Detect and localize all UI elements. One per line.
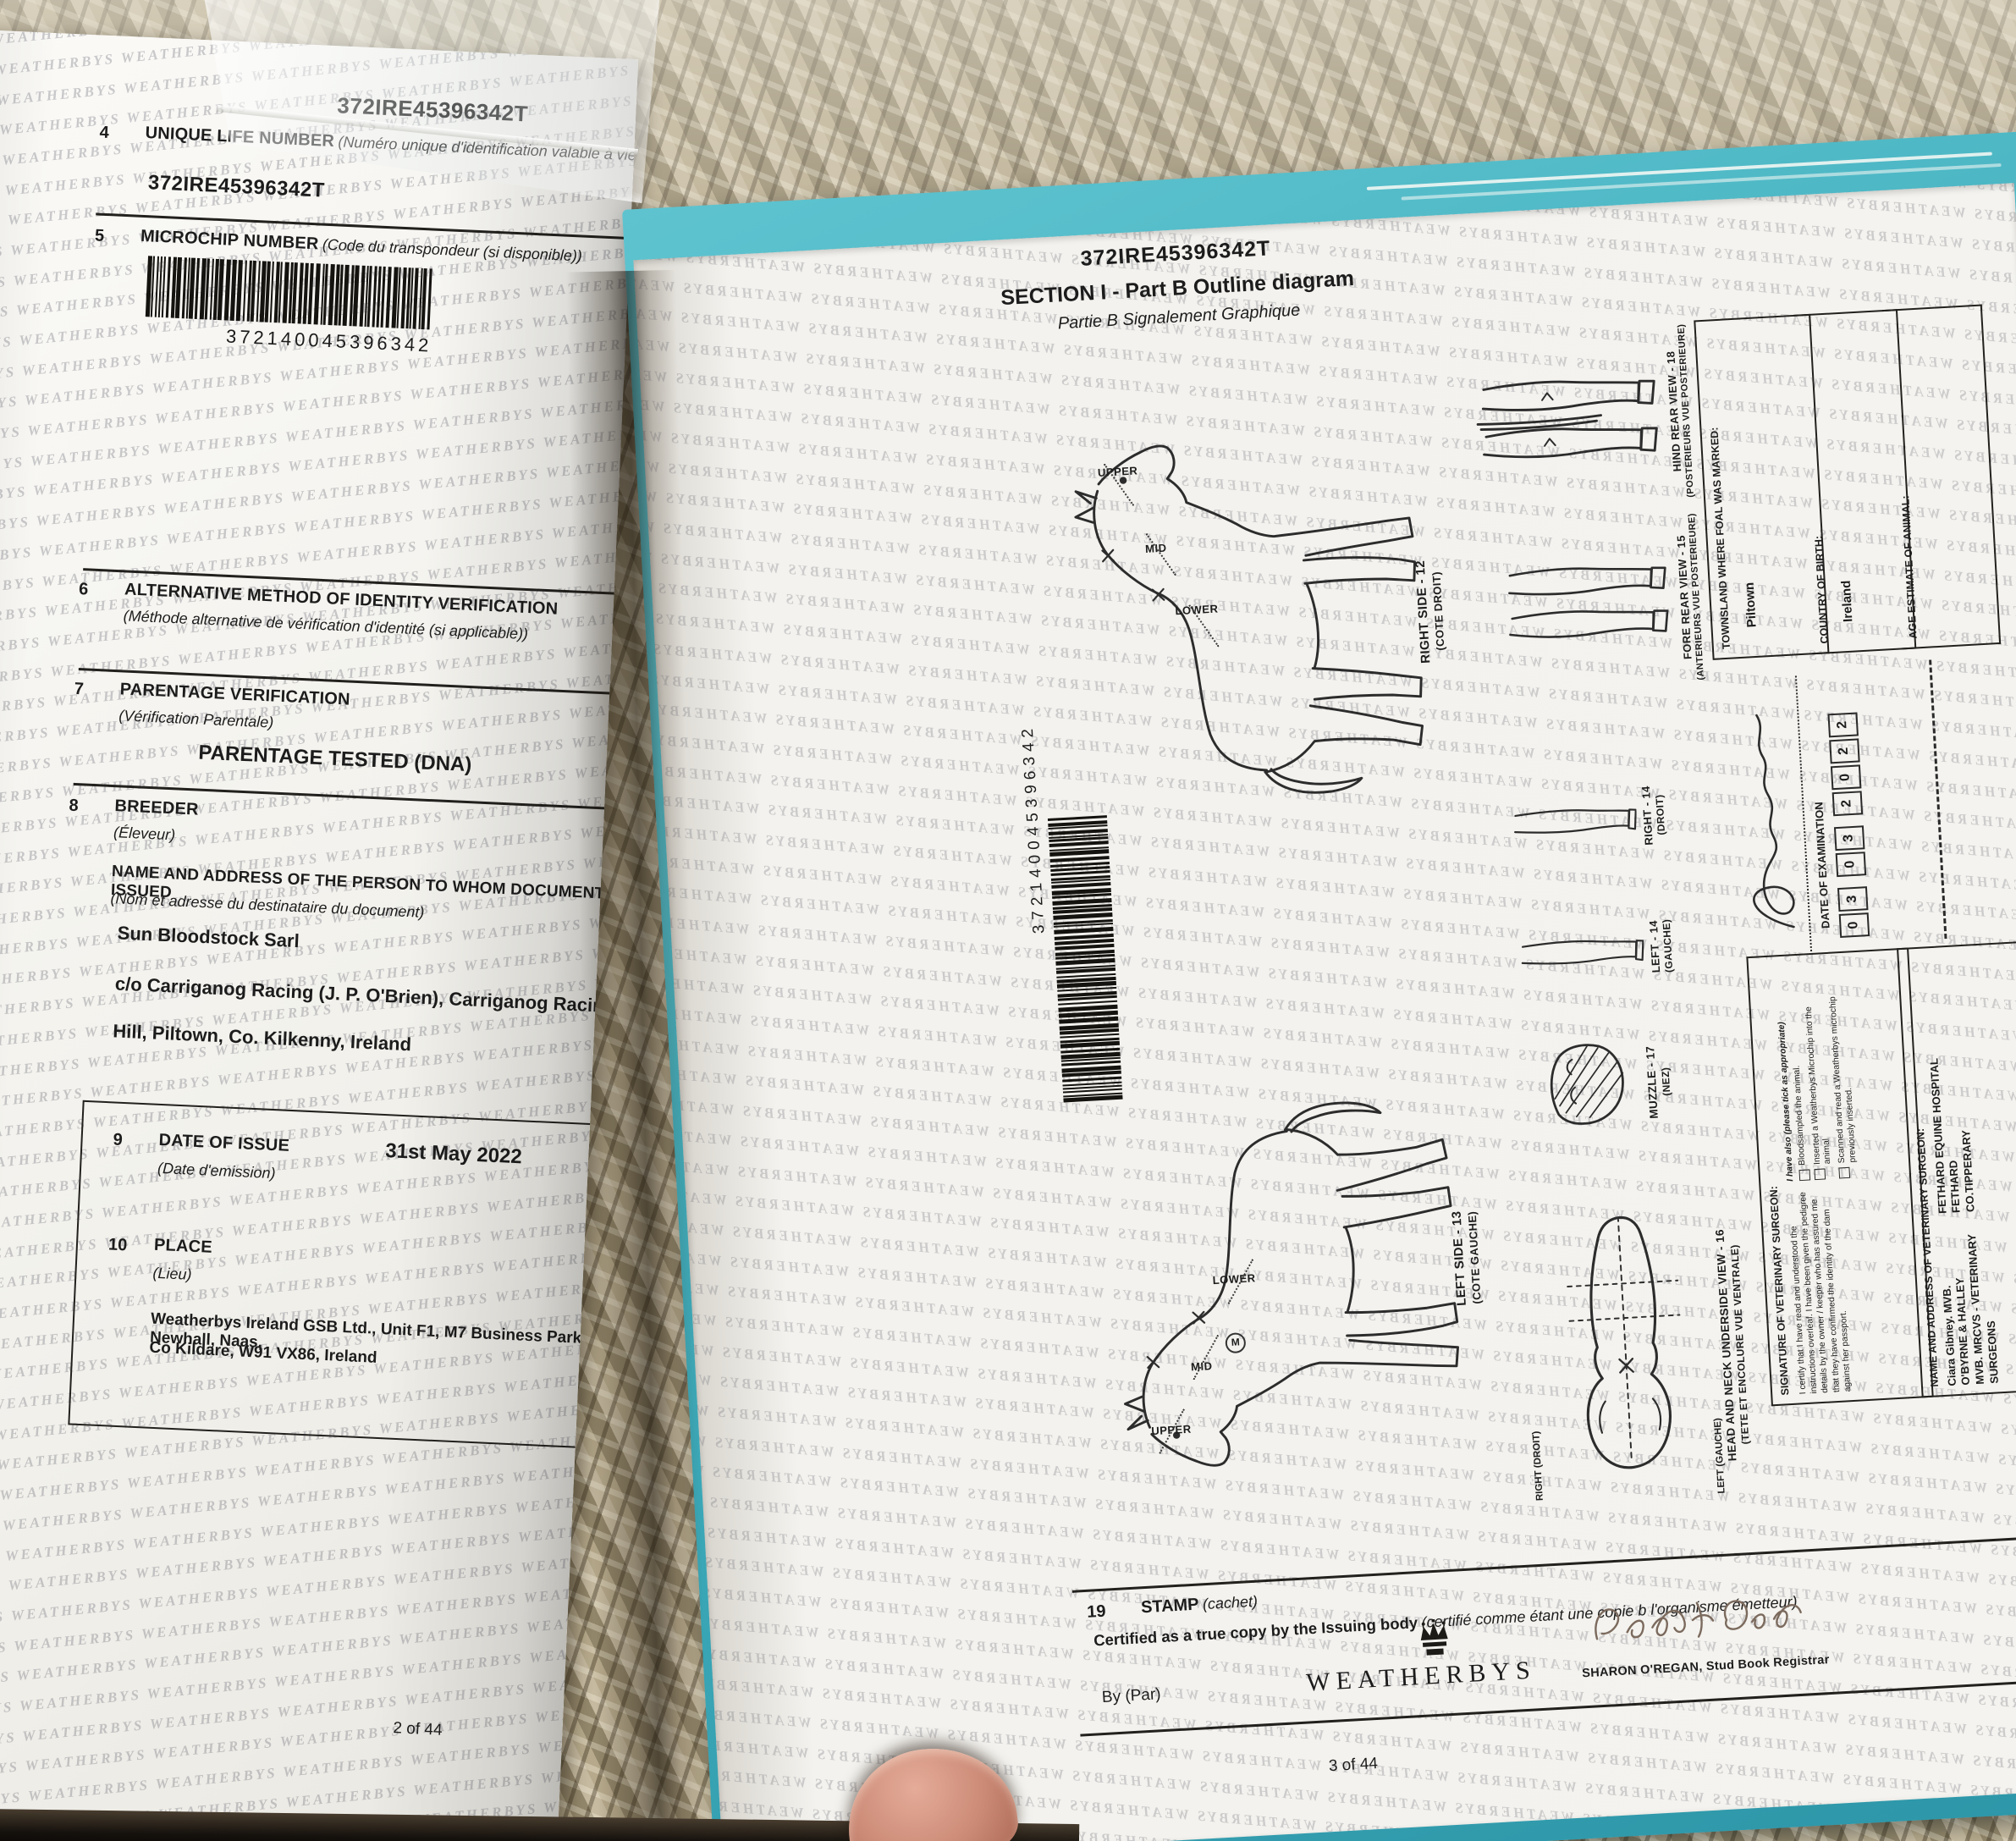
certification-text: I certify that I have read and understoo…	[1787, 1188, 1873, 1395]
microchip-barcode	[146, 256, 512, 333]
hind-rear-view-outline	[1469, 344, 1667, 494]
parentage-value: PARENTAGE TESTED (DNA)	[198, 741, 472, 778]
townsland-label: TOWNSLAND WHERE FOAL WAS MARKED:	[1703, 329, 1734, 649]
age-box: AGE ESTIMATE OF ANIMAL:	[1882, 304, 2001, 649]
weatherbys-crown-icon	[1411, 1618, 1457, 1660]
left-14-label: LEFT - 14 (GAUCHE)	[1645, 886, 1678, 1006]
townsland-value: Piltown	[1727, 328, 1759, 627]
section19-label: STAMP (cachet)	[1141, 1592, 1259, 1618]
dashed-separator	[1929, 659, 1947, 939]
right-14-label: RIGHT - 14 (DROIT)	[1638, 755, 1671, 875]
section9-number: 9	[113, 1130, 123, 1149]
section7-label-fr: (Vérification Parentale)	[118, 707, 274, 731]
by-label: By (Par)	[1101, 1685, 1161, 1707]
unique-life-number-value: 372IRE45396342T	[147, 171, 325, 202]
left-foreleg-outline	[1516, 921, 1645, 984]
examination-panel: SIGNATURE OF VETERINARY SURGEON: I certi…	[1695, 324, 2016, 1407]
microchip-scanned-checkbox	[1839, 1167, 1851, 1179]
date-of-examination-boxes: 03032022	[1827, 709, 1870, 938]
mane-lower-label: LOWER	[1212, 1271, 1256, 1287]
hind-rear-label: HIND REAR VIEW - 18 (POSTERIEURS VUE POS…	[1662, 322, 1698, 500]
section7-number: 7	[74, 680, 84, 699]
outline-diagram-rotated-block: 372140045396342	[997, 309, 2016, 1564]
horse-passport-photo: WEATHERBYS WEATHERBYS WEATHERBYS WEATHER…	[0, 0, 2016, 1841]
section6-number: 6	[79, 580, 89, 599]
tick-section: I have also (please tick as appropriate)…	[1775, 983, 1860, 1182]
mane-upper-label-2: UPPER	[1098, 464, 1138, 479]
right-foreleg-outline	[1508, 790, 1638, 852]
head-neck-right-label: RIGHT (DROIT)	[1531, 1428, 1547, 1505]
section8-label-fr: (Éleveur)	[113, 824, 176, 844]
section4-number: 4	[99, 124, 109, 143]
registrar-signature	[1581, 1582, 1864, 1665]
horse-left-side-outline	[1092, 987, 1484, 1540]
muzzle-outline	[1539, 1028, 1642, 1144]
breeder-line3: Hill, Piltown, Co. Kilkenny, Ireland	[113, 1020, 412, 1056]
muzzle-label: MUZZLE - 17 (NEZ)	[1641, 1005, 1677, 1158]
section10-label-fr: (Lieu)	[152, 1265, 192, 1284]
horse-right-side-outline	[1057, 362, 1450, 915]
section10-number: 10	[107, 1235, 127, 1255]
section8-number: 8	[69, 796, 79, 816]
head-neck-underside-outline	[1540, 1207, 1712, 1495]
section8-label: BREEDER	[114, 796, 199, 819]
section19-number: 19	[1087, 1602, 1106, 1623]
section7-label: PARENTAGE VERIFICATION	[119, 680, 350, 709]
microchip-inserted-checkbox	[1814, 1168, 1826, 1180]
right-page-number: 3 of 44	[1285, 1752, 1421, 1778]
breeder-line2: c/o Carriganog Racing (J. P. O'Brien), C…	[114, 973, 638, 1029]
left-page: WEATHERBYS WEATHERBYS WEATHERBYS WEATHER…	[0, 29, 638, 1841]
country-value: Ireland	[1824, 322, 1855, 622]
breeder-line1: Sun Bloodstock Sarl	[117, 922, 300, 952]
weatherbys-brand: WEATHERBYS	[1305, 1656, 1536, 1697]
section5-number: 5	[95, 226, 105, 245]
date-exam-area: DATE OF EXAMINATION 03032022	[1720, 663, 1892, 967]
section10-label: PLACE	[154, 1236, 213, 1258]
left-page-number: 2 of 44	[393, 1719, 443, 1740]
stamp-box-bottom	[1080, 1679, 2016, 1736]
right-page-group: WEATHERBYS WEATHERBYS WEATHERBYS WEATHER…	[622, 130, 2016, 1841]
certified-line: Certified as a true copy by the Issuing …	[1093, 1579, 2016, 1650]
date-exam-label: DATE OF EXAMINATION	[1812, 802, 1833, 929]
fore-rear-view-outline	[1496, 530, 1677, 675]
fore-rear-label: FORE REAR VIEW - 15 (ANTERIEURS VUE POST…	[1672, 499, 1709, 695]
right-page: WEATHERBYS WEATHERBYS WEATHERBYS WEATHER…	[633, 183, 2016, 1841]
bloodsample-checkbox	[1798, 1169, 1810, 1181]
